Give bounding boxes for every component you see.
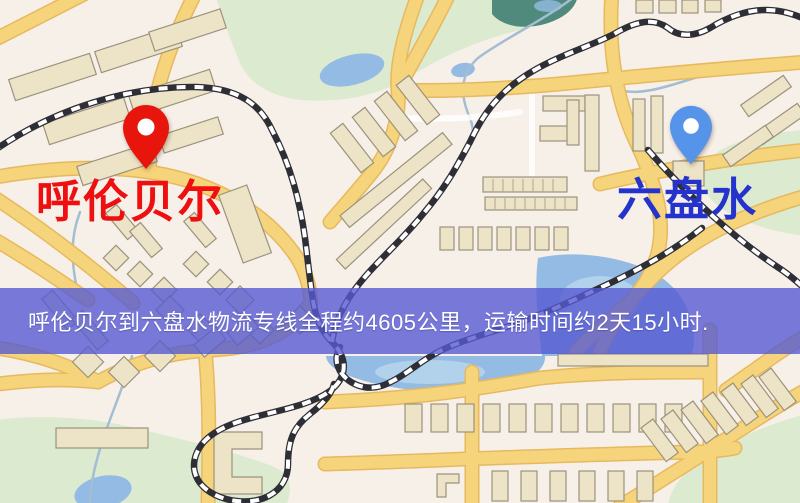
origin-label: 呼伦贝尔 bbox=[36, 179, 224, 224]
map-canvas[interactable] bbox=[0, 0, 800, 503]
destination-pin-icon[interactable] bbox=[668, 104, 714, 168]
route-info-banner: 呼伦贝尔到六盘水物流专线全程约4605公里，运输时间约2天15小时. bbox=[0, 288, 800, 354]
logistics-route-map: 呼伦贝尔到六盘水物流专线全程约4605公里，运输时间约2天15小时. 呼伦贝尔 … bbox=[0, 0, 800, 503]
route-info-text: 呼伦贝尔到六盘水物流专线全程约4605公里，运输时间约2天15小时. bbox=[28, 305, 709, 337]
destination-label: 六盘水 bbox=[617, 177, 758, 222]
origin-pin-icon[interactable] bbox=[121, 103, 171, 173]
